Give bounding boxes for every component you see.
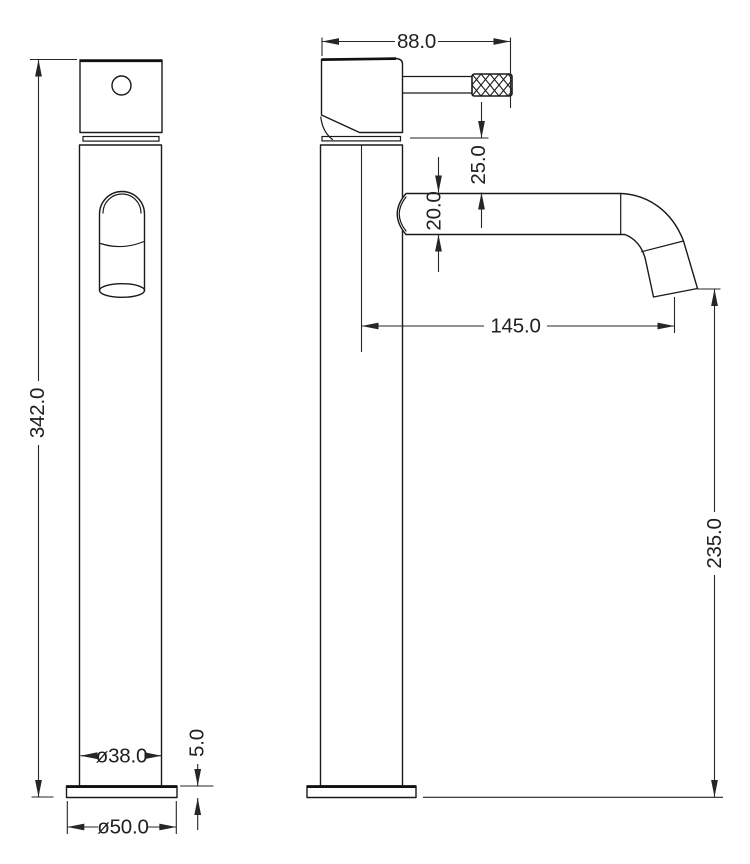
body-column <box>80 145 162 786</box>
lever-rod <box>403 77 473 94</box>
arrowhead <box>494 38 511 45</box>
spout-front-outline <box>100 192 145 291</box>
side-view <box>307 59 698 798</box>
spout-front-mid-arc <box>101 242 145 247</box>
mixer-head <box>322 59 403 133</box>
arrowhead <box>362 323 379 330</box>
arrowhead <box>35 780 42 797</box>
dim-spout-reach-label: 145.0 <box>490 315 540 338</box>
dim-spout-outlet-height-label: 235.0 <box>703 518 726 568</box>
arrowhead <box>658 323 675 330</box>
technical-drawing-page: 342.0 ø38.0 ø50.0 5.0 88.0 <box>0 0 750 864</box>
arrowhead <box>435 176 442 193</box>
arrowhead <box>478 121 485 138</box>
arrowhead <box>435 235 442 252</box>
faucet-dimension-drawing: 342.0 ø38.0 ø50.0 5.0 88.0 <box>0 0 750 864</box>
mixer-head-top-edge <box>322 59 397 60</box>
spout-front-outlet <box>100 284 145 298</box>
knurled-knob-texture <box>472 74 512 96</box>
arrowhead <box>711 289 718 306</box>
arrowhead <box>35 60 42 77</box>
neck-ring <box>83 137 159 142</box>
dim-spout-diameter: 20.0 <box>423 157 446 272</box>
arrowhead <box>194 798 201 815</box>
arrowhead <box>194 769 201 786</box>
arrowhead <box>67 824 84 831</box>
neck-ring <box>322 137 401 141</box>
extension-lines <box>423 289 723 797</box>
dim-base-thickness: 5.0 <box>180 729 214 830</box>
dim-body-diameter: ø38.0 <box>81 745 162 768</box>
dim-spout-reach: 145.0 <box>362 146 675 353</box>
dim-base-diameter-label: ø50.0 <box>97 816 148 839</box>
handle-cap <box>80 60 162 133</box>
dim-head-width-label: 88.0 <box>397 30 436 53</box>
spout-front-inner-arc <box>103 194 141 213</box>
push-button-circle <box>112 76 131 95</box>
dim-spout-outlet-height: 235.0 <box>423 289 726 797</box>
dim-overall-height: 342.0 <box>26 60 77 798</box>
dimension-annotations: 342.0 ø38.0 ø50.0 5.0 88.0 <box>26 30 726 839</box>
dim-spout-diameter-label: 20.0 <box>423 191 446 230</box>
dim-body-diameter-label: ø38.0 <box>96 745 147 768</box>
dim-base-diameter: ø50.0 <box>67 801 176 839</box>
arrowhead <box>711 780 718 797</box>
arrowhead <box>322 38 339 45</box>
front-view <box>67 60 178 798</box>
spout-front <box>100 192 145 298</box>
dim-spout-drop-label: 25.0 <box>467 145 490 184</box>
dim-overall-height-label: 342.0 <box>26 388 49 438</box>
dim-base-thickness-label: 5.0 <box>186 729 209 757</box>
arrowhead <box>159 824 176 831</box>
